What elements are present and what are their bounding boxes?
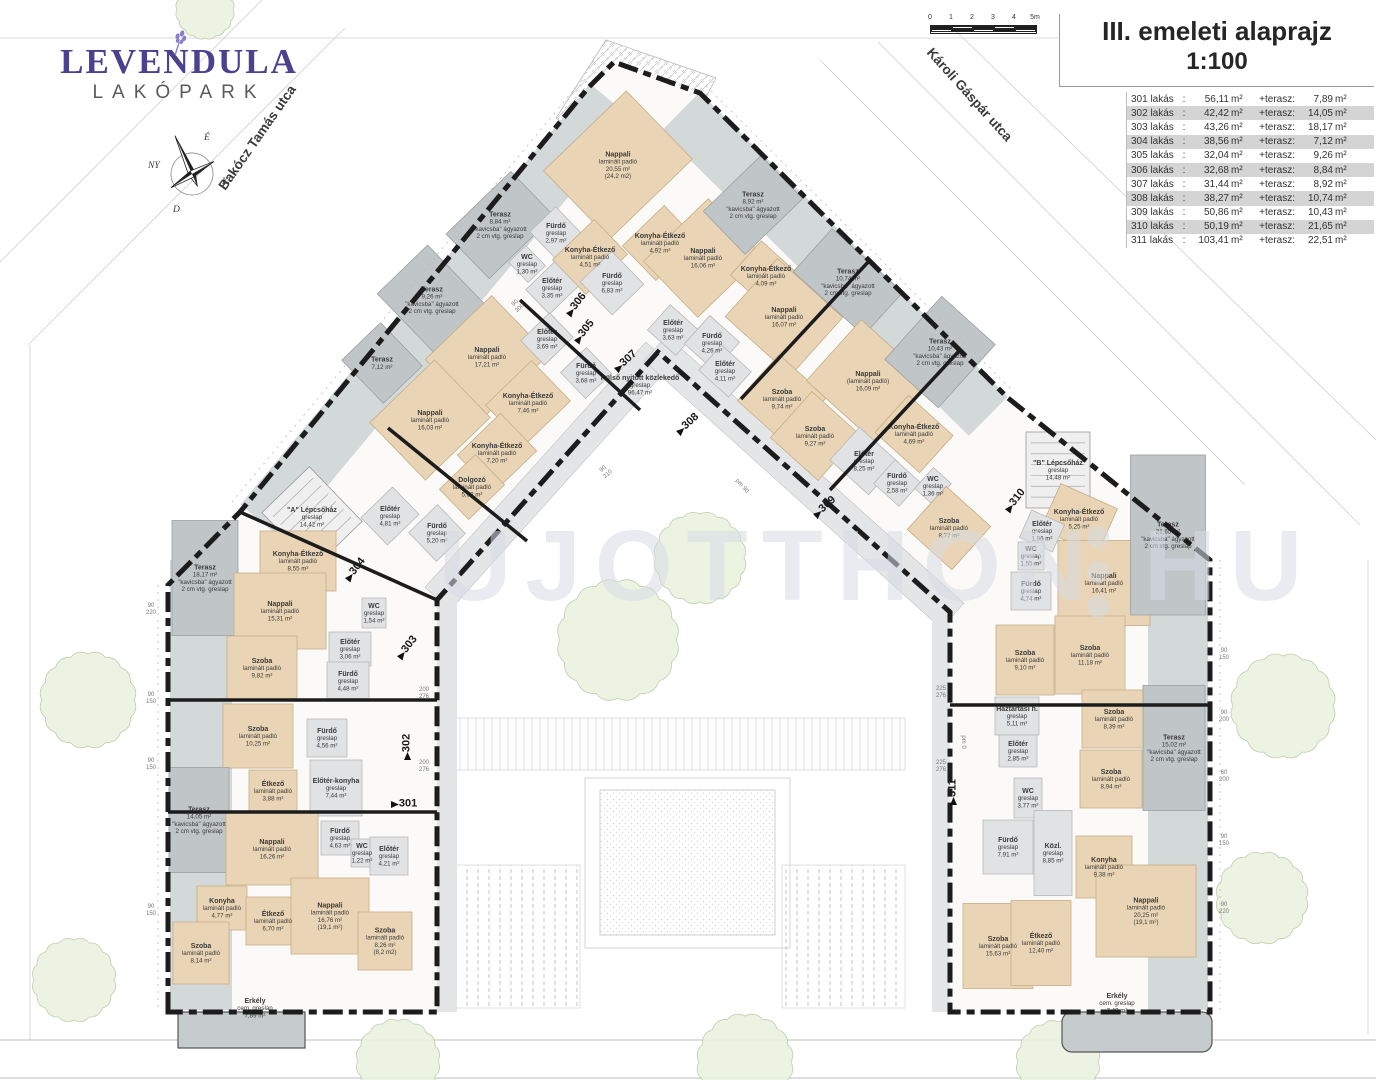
- lavender-icon: [164, 28, 194, 58]
- room-label-line: Fürdő: [602, 273, 622, 280]
- apartment-legend: 301 lakás:56,11m²+terasz:7,89m²302 lakás…: [1126, 92, 1374, 248]
- room-label: Fürdőgreslap2,58 m²: [887, 473, 908, 495]
- legend-cell: +terasz:: [1247, 193, 1297, 204]
- legend-cell: m²: [1333, 108, 1351, 119]
- dimension-text: 90: [1221, 648, 1228, 654]
- room-label-line: 4,51 m²: [580, 262, 601, 269]
- legend-cell: m²: [1229, 221, 1247, 232]
- compass-north-label: É: [203, 131, 210, 143]
- dimension-label: 225276: [936, 760, 947, 773]
- legend-cell: m²: [1229, 150, 1247, 161]
- room-label-line: 3,88 m²: [263, 796, 284, 803]
- room-label-line: Nappali: [259, 839, 284, 846]
- dimension-text: 90: [148, 692, 155, 698]
- dimension-text: 200: [1219, 777, 1230, 783]
- sheet-title: III. emeleti alaprajz: [1060, 16, 1374, 47]
- legend-cell: 21,65: [1297, 221, 1333, 232]
- scale-bar-tick: 4: [1012, 14, 1016, 21]
- logo-subtitle: LAKÓPARK: [48, 82, 310, 104]
- tree: [1231, 654, 1335, 758]
- room-label-line: Étkező: [262, 909, 285, 918]
- room-label-line: laminált padló: [1022, 940, 1061, 947]
- room-label-line: 7,46 m²: [518, 408, 539, 415]
- dimension-label: 90200: [1219, 710, 1230, 723]
- room-label-line: Fürdő: [702, 333, 722, 340]
- room-label-line: 16,26 m²: [260, 854, 284, 861]
- compass-icon: É K D NY: [146, 126, 238, 218]
- open-corridor: [437, 600, 457, 1012]
- legend-cell: 311 lakás: [1127, 235, 1181, 246]
- dimension-text: 60: [1221, 770, 1228, 776]
- apartment-number: 311: [947, 779, 959, 797]
- dimension-label: 225276: [936, 686, 947, 699]
- room-label-line: Fürdő: [317, 728, 337, 735]
- room-label-line: Közl.: [1045, 843, 1062, 850]
- watermark-text-left: UJOTTHON: [439, 510, 1101, 622]
- dimension-text: 276: [936, 767, 947, 773]
- legend-cell: m²: [1229, 108, 1247, 119]
- room-label-line: laminált padló: [239, 733, 278, 740]
- room-label-line: 8,26 m²: [375, 942, 396, 949]
- scale-bar-numbers: 012345m: [930, 14, 1042, 24]
- room-label: Előtérgreslap4,81 m²: [380, 506, 401, 528]
- legend-cell: 305 lakás: [1127, 150, 1181, 161]
- dimension-text: 200: [419, 687, 430, 693]
- room-label-line: Konyha: [209, 898, 235, 905]
- legend-cell: 38,27: [1187, 193, 1229, 204]
- paving-band: [448, 865, 580, 1008]
- room-label-line: Fürdő: [998, 837, 1018, 844]
- dimension-text: 90: [148, 603, 155, 609]
- legend-cell: m²: [1333, 235, 1351, 246]
- room-label-line: WC: [521, 254, 533, 261]
- legend-cell: m²: [1333, 122, 1351, 133]
- room-label: Előtérgreslap2,85 m²: [1008, 741, 1029, 763]
- room-label-line: greslap: [330, 835, 351, 842]
- sheet-scale: 1:100: [1060, 48, 1374, 76]
- room-label-line: Előtér: [715, 361, 735, 368]
- room-label-line: Erkély: [1106, 993, 1127, 1000]
- room-label-line: Fürdő: [887, 473, 907, 480]
- room-label-line: laminált padló: [1085, 864, 1124, 871]
- room-label-line: 2 cm vtg. greslap: [1150, 756, 1198, 763]
- room-label: Fürdőgreslap6,83 m²: [602, 273, 623, 295]
- legend-cell: 304 lakás: [1127, 136, 1181, 147]
- scale-bar-segment: [973, 29, 994, 32]
- dimension-text: 200: [419, 760, 430, 766]
- scale-bar: 012345m: [930, 14, 1042, 38]
- room-label-line: 11,18 m²: [1078, 660, 1102, 667]
- legend-cell: 310 lakás: [1127, 221, 1181, 232]
- dimension-label: pm 90: [734, 478, 750, 495]
- room-label-line: greslap: [302, 514, 323, 521]
- room-label-line: 2 cm vtg. greslap: [824, 290, 872, 297]
- room-label-line: Konyha-Étkező: [635, 231, 686, 240]
- watermark: UJOTTHONHU: [439, 510, 1316, 622]
- room-label-line: laminált padló: [1095, 716, 1134, 723]
- legend-cell: 10,43: [1297, 207, 1333, 218]
- legend-cell: 10,74: [1297, 193, 1333, 204]
- legend-cell: m²: [1229, 94, 1247, 105]
- room-label-line: Konyha-Étkező: [889, 422, 940, 431]
- room-label-line: laminált padló: [1071, 652, 1110, 659]
- tree: [356, 1019, 439, 1080]
- room-label-line: 2 cm vtg. greslap: [181, 586, 229, 593]
- scale-bar-tick: 2: [970, 14, 974, 21]
- room-label-line: WC: [1022, 788, 1034, 795]
- room-label-line: 3,68 m²: [576, 378, 597, 385]
- room-label-line: (24,2 m2): [605, 173, 631, 180]
- room-label-line: 2,85 m²: [1008, 756, 1029, 763]
- room-label-line: 3,63 m²: [663, 335, 684, 342]
- legend-cell: 56,11: [1187, 94, 1229, 105]
- legend-cell: m²: [1333, 136, 1351, 147]
- legend-cell: 308 lakás: [1127, 193, 1181, 204]
- room-label-line: laminált padló: [763, 396, 802, 403]
- room-label-line: 3,35 m²: [542, 293, 563, 300]
- room-label-line: laminált padló: [203, 905, 242, 912]
- room-label-line: laminált padló: [1006, 657, 1045, 664]
- room-label-line: 6,83 m²: [602, 288, 623, 295]
- dimension-text: 90: [148, 904, 155, 910]
- apartment-number: 302: [401, 734, 413, 752]
- room-label-line: laminált padló: [411, 417, 450, 424]
- legend-cell: m²: [1333, 94, 1351, 105]
- legend-row: 303 lakás:43,26m²+terasz:18,17m²: [1127, 120, 1374, 134]
- room-label-line: 2 cm vtg. greslap: [729, 213, 777, 220]
- room-label-line: "kavicsba" ágyazott: [913, 353, 967, 360]
- dimension-text: 225: [936, 686, 947, 692]
- scale-bar-segment: [952, 29, 973, 32]
- room-label-line: 17,21 m²: [475, 362, 499, 369]
- balcony: [1062, 1012, 1212, 1052]
- room-label-line: laminált padló: [478, 450, 517, 457]
- room-label-line: greslap: [1007, 713, 1028, 720]
- dimension-text: 150: [146, 765, 157, 771]
- room-label-line: Terasz: [1163, 734, 1185, 741]
- room-label: Fürdőgreslap4,26 m²: [702, 333, 723, 355]
- legend-cell: 303 lakás: [1127, 122, 1181, 133]
- room-label-line: 4,69 m²: [904, 439, 925, 446]
- room-label-line: Konyha-Étkező: [503, 391, 554, 400]
- legend-cell: 7,89: [1297, 94, 1333, 105]
- room-label-line: 20,25 m²: [1134, 912, 1158, 919]
- legend-cell: +terasz:: [1247, 207, 1297, 218]
- legend-cell: 43,26: [1187, 122, 1229, 133]
- room-label: Közl.greslap8,85 m²: [1043, 843, 1064, 865]
- room-label: Előtérgreslap3,35 m²: [542, 278, 563, 300]
- dimension-text: 150: [146, 911, 157, 917]
- room-label-line: greslap: [1018, 795, 1039, 802]
- legend-cell: 302 lakás: [1127, 108, 1181, 119]
- dimension-text: 225: [936, 760, 947, 766]
- room-label-line: 12,40 m²: [1029, 948, 1053, 955]
- room-label-line: Konyha-Étkező: [741, 264, 792, 273]
- room-label-line: Nappali: [771, 307, 796, 314]
- room-label: Előtérgreslap3,63 m²: [663, 320, 684, 342]
- watermark-text-right: HU: [1144, 510, 1316, 622]
- room-label-line: 1,54 m²: [364, 618, 385, 625]
- apartment-marker: 308: [674, 411, 701, 437]
- room-label-line: Előtér: [380, 506, 400, 513]
- scale-bar-tick: 0: [928, 14, 932, 21]
- room-label-line: greslap: [326, 785, 347, 792]
- room-label-line: 14,42 m²: [300, 522, 324, 529]
- dimension-text: 276: [419, 694, 430, 700]
- tree: [697, 1014, 793, 1080]
- room-label-line: greslap: [702, 340, 723, 347]
- legend-row: 302 lakás:42,42m²+terasz:14,05m²: [1127, 106, 1374, 120]
- room-label-line: greslap: [542, 285, 563, 292]
- room-label-line: Előtér: [379, 846, 399, 853]
- room-label-line: 4,26 m²: [702, 348, 723, 355]
- dimension-text: 90: [1221, 710, 1228, 716]
- room-label-line: 14,48 m²: [1046, 475, 1070, 482]
- room-label-line: Nappali: [690, 248, 715, 255]
- legend-cell: 42,42: [1187, 108, 1229, 119]
- room-label-line: Terasz: [489, 211, 511, 218]
- legend-cell: 307 lakás: [1127, 179, 1181, 190]
- room-label-line: 4,56 m²: [317, 743, 338, 750]
- room-label-line: 9,74 m²: [772, 404, 793, 411]
- legend-cell: m²: [1229, 235, 1247, 246]
- room-label-line: greslap: [1008, 748, 1029, 755]
- room-label-line: 4,77 m²: [212, 913, 233, 920]
- room-label-line: Előtér: [340, 639, 360, 646]
- compass-east-label: K: [221, 177, 229, 187]
- room-label-line: 7,91 m²: [998, 852, 1019, 859]
- room-label-line: laminált padló: [254, 788, 293, 795]
- room-label-line: 8,92 m²: [743, 199, 764, 206]
- scale-bar-segment: [994, 29, 1015, 32]
- room-label-line: Erkély: [244, 998, 265, 1005]
- legend-cell: m²: [1333, 193, 1351, 204]
- room-label-line: Terasz: [194, 564, 216, 571]
- room-label-line: 1,22 m²: [352, 858, 373, 865]
- title-block: III. emeleti alaprajz 1:100: [1059, 14, 1374, 87]
- dimension-label: 60200: [1219, 770, 1230, 783]
- room-label-line: 9,26 m²: [422, 294, 443, 301]
- dimension-text: 220: [146, 610, 157, 616]
- room-label-line: 16,76 m²: [318, 917, 342, 924]
- room-label-line: 6,70 m²: [263, 926, 284, 933]
- room-label-line: Nappali: [317, 902, 342, 909]
- legend-cell: 22,51: [1297, 235, 1333, 246]
- room-label-line: Fürdő: [338, 671, 358, 678]
- room-label-line: Szoba: [1080, 645, 1101, 652]
- dimension-text: 90: [1221, 834, 1228, 840]
- legend-cell: m²: [1229, 193, 1247, 204]
- floorplan-sheet: Nappalilaminált padló20,55 m²(24,2 m2)Te…: [0, 0, 1376, 1080]
- logo: LEVENDULA LAKÓPARK: [48, 44, 310, 104]
- legend-cell: 50,86: [1187, 207, 1229, 218]
- room-label-line: greslap: [663, 327, 684, 334]
- legend-cell: m²: [1333, 165, 1351, 176]
- room-label: Terasz7,12 m²: [371, 357, 393, 371]
- room-label-line: greslap: [1043, 850, 1064, 857]
- scale-bar-tick: 1: [949, 14, 953, 21]
- room-label-line: WC: [356, 843, 368, 850]
- tree: [40, 652, 136, 748]
- balcony: [178, 1012, 305, 1048]
- room-label-line: 4,21 m²: [379, 861, 400, 868]
- room-label-line: 16,03 m²: [418, 425, 442, 432]
- room-label-line: 8,39 m²: [1104, 724, 1125, 731]
- room-label-line: "kavicsba" ágyazott: [473, 226, 527, 233]
- room-label: Fürdőgreslap4,48 m²: [338, 671, 359, 693]
- room-label-line: Szoba: [805, 426, 826, 433]
- dimension-label: 200276: [419, 760, 430, 773]
- room-label-line: "kavicsba" ágyazott: [178, 579, 232, 586]
- room-label-line: laminált padló: [641, 240, 680, 247]
- room-label-line: 7,44 m²: [326, 793, 347, 800]
- legend-row: 310 lakás:50,19m²+terasz:21,65m²: [1127, 220, 1374, 234]
- dimension-text: 90: [1221, 902, 1228, 908]
- apartment-number: 301: [399, 798, 417, 810]
- room-label-line: greslap: [379, 853, 400, 860]
- dimension-label: pm 0: [960, 735, 966, 749]
- legend-cell: 7,12: [1297, 136, 1333, 147]
- room-label-line: 10,25 m²: [246, 741, 270, 748]
- watermark-dot: [1087, 596, 1109, 618]
- room-label: Előtérgreslap4,21 m²: [379, 846, 400, 868]
- room-label: Fürdőgreslap4,56 m²: [317, 728, 338, 750]
- room-label-line: Konyha: [1091, 857, 1117, 864]
- room-label-line: 1,36 m²: [923, 491, 944, 498]
- room-label-line: 16,09 m²: [856, 386, 880, 393]
- room-label-line: 9,38 m²: [1094, 872, 1115, 879]
- room-label-line: Nappali: [605, 151, 630, 158]
- room-label-line: greslap: [317, 735, 338, 742]
- room-label-line: Előtér: [663, 320, 683, 327]
- room-label-line: 8,55 m²: [288, 566, 309, 573]
- room-label-line: WC: [368, 603, 380, 610]
- compass-south-label: D: [172, 205, 180, 215]
- scale-bar-segment: [931, 29, 952, 32]
- room-label: Fürdőgreslap4,63 m²: [330, 828, 351, 850]
- legend-cell: m²: [1333, 179, 1351, 190]
- room-label-line: greslap: [923, 483, 944, 490]
- legend-cell: 31,44: [1187, 179, 1229, 190]
- room-label-line: Konyha-Étkező: [273, 549, 324, 558]
- room-label-line: 9,82 m²: [252, 673, 273, 680]
- room-label-line: "kavicsba" ágyazott: [172, 821, 226, 828]
- legend-cell: 38,56: [1187, 136, 1229, 147]
- room-label-line: (19,1 m²): [1133, 919, 1158, 926]
- room-label-line: Fürdő: [546, 223, 566, 230]
- room-label-line: Nappali: [417, 410, 442, 417]
- legend-cell: 32,68: [1187, 165, 1229, 176]
- room-label-line: "A" Lépcsőház: [287, 507, 337, 514]
- room-label-line: 15,02 m²: [1162, 742, 1186, 749]
- room-label-line: 8,94 m²: [1101, 784, 1122, 791]
- room-label: Előtérgreslap4,11 m²: [715, 361, 736, 383]
- room-label-line: Szoba: [375, 927, 396, 934]
- legend-cell: 103,41: [1187, 235, 1229, 246]
- room-label-line: Étkező: [1030, 931, 1053, 940]
- room-label-line: 5,11 m²: [1007, 721, 1028, 728]
- dimension-label: 90220: [146, 603, 157, 616]
- tree: [1216, 852, 1308, 944]
- dimension-text: 200: [1219, 717, 1230, 723]
- dimension-label: 200276: [419, 687, 430, 700]
- room-label-line: laminált padló: [979, 943, 1018, 950]
- legend-cell: 8,84: [1297, 165, 1333, 176]
- room-label-line: greslap: [1048, 467, 1069, 474]
- legend-cell: 32,04: [1187, 150, 1229, 161]
- watermark-dot: [1087, 526, 1109, 548]
- room-label-line: Fürdő: [330, 828, 350, 835]
- room-label-line: Étkező: [262, 779, 285, 788]
- legend-cell: 14,05: [1297, 108, 1333, 119]
- room-label-line: Nappali: [267, 601, 292, 608]
- room-label-line: greslap: [340, 646, 361, 653]
- room-label-line: laminált padló: [509, 400, 548, 407]
- room-label-line: 9,27 m²: [805, 441, 826, 448]
- room-label-line: laminált padló: [796, 433, 835, 440]
- room-label-line: laminált padló: [571, 254, 610, 261]
- room-label-line: WC: [927, 476, 939, 483]
- room-label-line: (19,1 m²): [317, 924, 342, 931]
- room-label-line: Szoba: [1015, 650, 1036, 657]
- dimension-label: 90210: [598, 463, 615, 480]
- room-label-line: 9,10 m²: [1015, 665, 1036, 672]
- room-label-line: Előtér-konyha: [313, 778, 360, 785]
- room-label-line: 4,63 m²: [330, 843, 351, 850]
- room-label-line: 2,97 m²: [546, 238, 567, 245]
- legend-cell: +terasz:: [1247, 221, 1297, 232]
- room-label-line: laminált padló: [895, 431, 934, 438]
- scale-bar-graphic: [930, 25, 1037, 34]
- dimension-text: 150: [146, 699, 157, 705]
- room-label-line: laminált padló: [468, 354, 507, 361]
- room-label-line: 18,17 m²: [193, 572, 217, 579]
- room-label-line: (laminált padló): [847, 378, 889, 385]
- room-label-line: Szoba: [248, 726, 269, 733]
- legend-cell: m²: [1333, 207, 1351, 218]
- room-label-line: greslap: [338, 678, 359, 685]
- legend-cell: m²: [1229, 207, 1247, 218]
- legend-row: 308 lakás:38,27m²+terasz:10,74m²: [1127, 191, 1374, 205]
- room-label-line: Nappali: [474, 347, 499, 354]
- legend-cell: +terasz:: [1247, 150, 1297, 161]
- legend-cell: +terasz:: [1247, 94, 1297, 105]
- paving-band: [782, 865, 905, 1008]
- room-label-line: 2 cm vtg. greslap: [408, 308, 456, 315]
- scale-bar-tick: 3: [991, 14, 995, 21]
- room-label-line: laminált padló: [684, 255, 723, 262]
- scale-bar-tick: 5m: [1030, 14, 1040, 21]
- room-label-line: Terasz: [371, 357, 393, 364]
- room-label-line: 2 cm vtg. greslap: [175, 828, 223, 835]
- room-label-line: 2 cm vtg. greslap: [916, 360, 964, 367]
- room-label-line: Előtér: [1008, 741, 1028, 748]
- dimension-label: 90150: [146, 692, 157, 705]
- room-label-line: Konyha-Étkező: [565, 245, 616, 254]
- room-label-line: 4,48 m²: [338, 686, 359, 693]
- room-label-line: laminált padló: [747, 273, 786, 280]
- room-label-line: laminált padló: [765, 314, 804, 321]
- dimension-label: 90150: [1219, 834, 1230, 847]
- legend-row: 305 lakás:32,04m²+terasz:9,26m²: [1127, 149, 1374, 163]
- dimension-label: 90150: [146, 758, 157, 771]
- room-label-line: 16,07 m²: [772, 322, 796, 329]
- room-label-line: 4,92 m²: [650, 248, 671, 255]
- room-label-line: greslap: [352, 850, 373, 857]
- open-corridor: [932, 612, 950, 1012]
- room-label-line: 3,06 m²: [340, 654, 361, 661]
- room-label: Fürdőgreslap2,97 m²: [546, 223, 567, 245]
